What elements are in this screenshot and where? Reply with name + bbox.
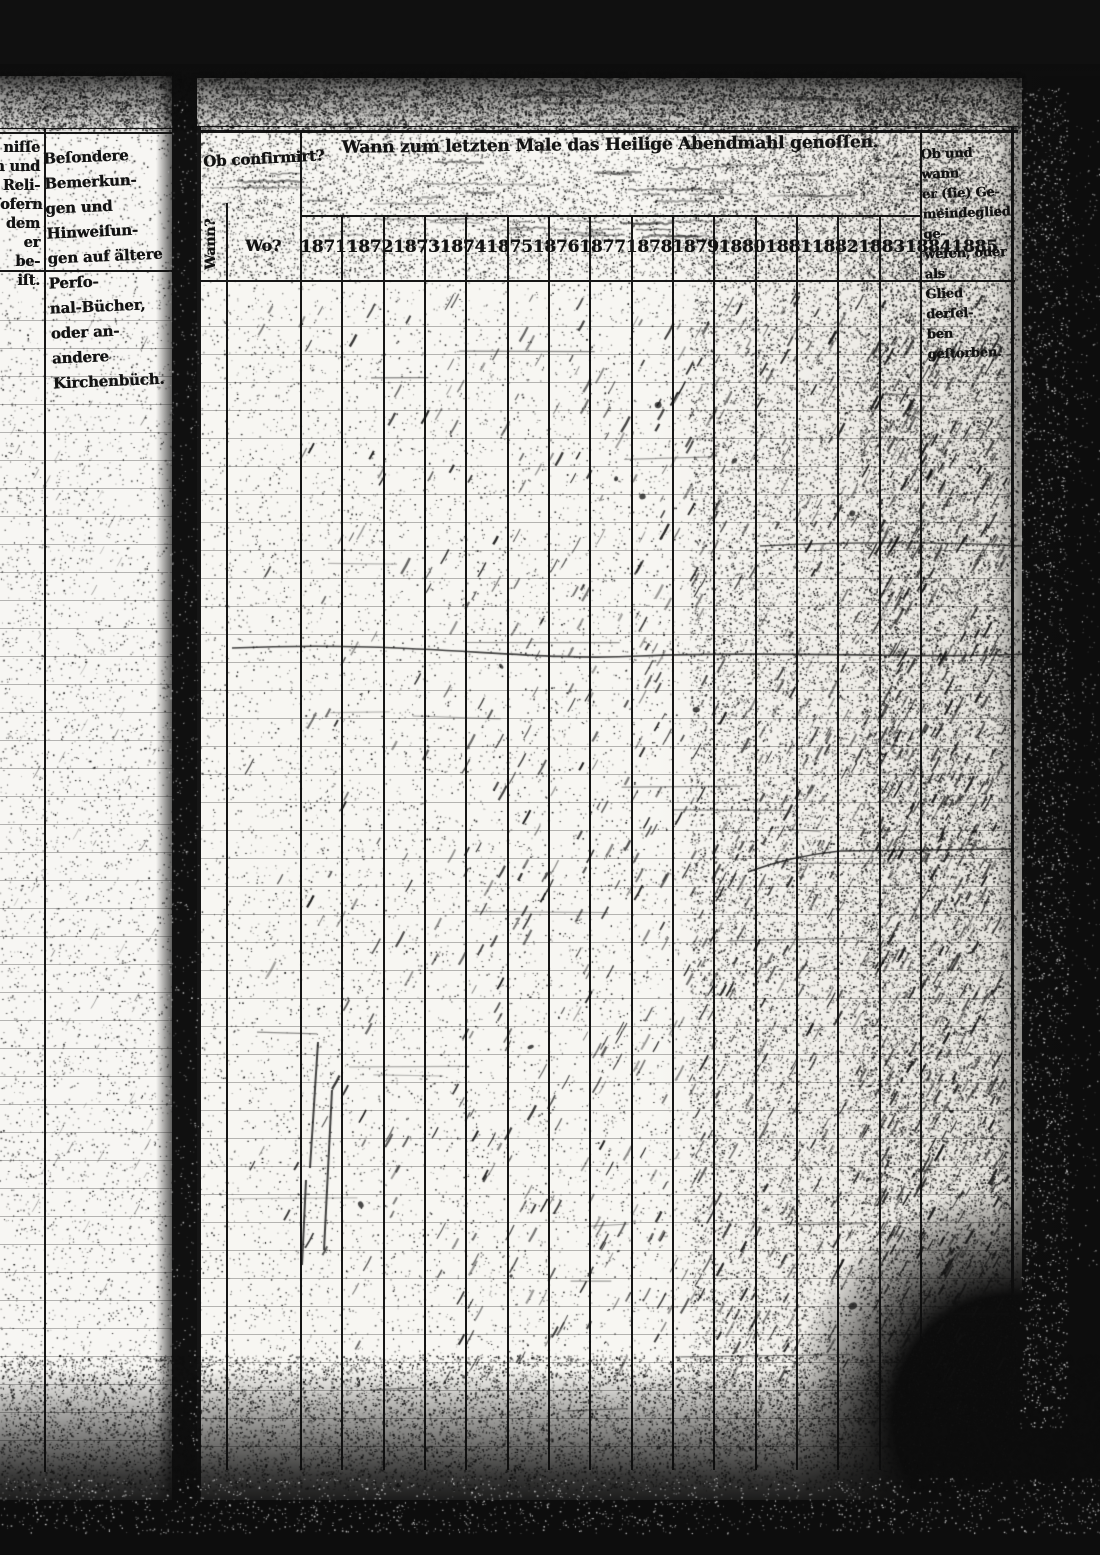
wo-column-header: Wo? [226, 236, 300, 255]
clipped-line: Reli- [0, 176, 40, 195]
years-top-rule [300, 215, 920, 217]
scanned-register-spread: niſſe n und Reli- ſofern dem er be- iſt.… [0, 0, 1100, 1555]
left-page-fragment: niſſe n und Reli- ſofern dem er be- iſt.… [0, 76, 172, 1500]
year-header-1883: 1883 [858, 218, 905, 276]
remarks-line: gen und Hinweiſun- [45, 191, 169, 246]
left-header-top-rule [0, 132, 172, 134]
year-header-1876: 1876 [533, 218, 580, 276]
main-register-page: Ob confirmirt? Wann? Wo? Wann zum letzte… [197, 78, 1022, 1500]
gutter-shadow [156, 76, 172, 1500]
ruled-rows [201, 326, 1014, 1465]
clipped-line: dem [0, 214, 40, 233]
wann-column-header: Wann? [197, 211, 225, 277]
clipped-line: ſofern [0, 195, 40, 214]
membership-header-line: meindeglied ge- [922, 203, 1009, 246]
year-header-1882: 1882 [812, 218, 859, 276]
year-header-1875: 1875 [486, 218, 533, 276]
left-header-top-line [0, 128, 172, 129]
remarks-line: Beſondere Bemerkun- [43, 141, 167, 196]
membership-header-line: Ob und wann [920, 143, 1007, 186]
membership-header-line: Glied derſel- [925, 282, 1012, 325]
year-header-1880: 1880 [719, 218, 766, 276]
year-header-1878: 1878 [626, 218, 673, 276]
year-header-1877: 1877 [579, 218, 626, 276]
year-header-1879: 1879 [672, 218, 719, 276]
abendmahl-group-header: Wann zum letzten Male das Heilige Abendm… [297, 132, 923, 159]
year-header-1872: 1872 [347, 218, 394, 276]
clipped-line: n und [0, 157, 40, 176]
year-header-1874: 1874 [440, 218, 487, 276]
remarks-line: gen auf ältere Perſo- [47, 241, 171, 296]
left-ruled-rows [0, 320, 172, 1460]
membership-header-line: weſen, oder als [924, 243, 1011, 286]
clipped-margin-column: niſſe n und Reli- ſofern dem er be- iſt. [0, 138, 40, 290]
year-header-1873: 1873 [393, 218, 440, 276]
frame-top-line [201, 126, 1018, 127]
clipped-line: iſt. [0, 271, 40, 290]
header-bottom-rule [201, 280, 1015, 282]
clipped-line: niſſe [0, 138, 40, 157]
year-header-1871: 1871 [300, 218, 347, 276]
year-header-1881: 1881 [765, 218, 812, 276]
year-header-row: 1871 1872 1873 1874 1875 1876 1877 1878 … [300, 218, 920, 276]
clipped-line: er be- [0, 233, 40, 271]
